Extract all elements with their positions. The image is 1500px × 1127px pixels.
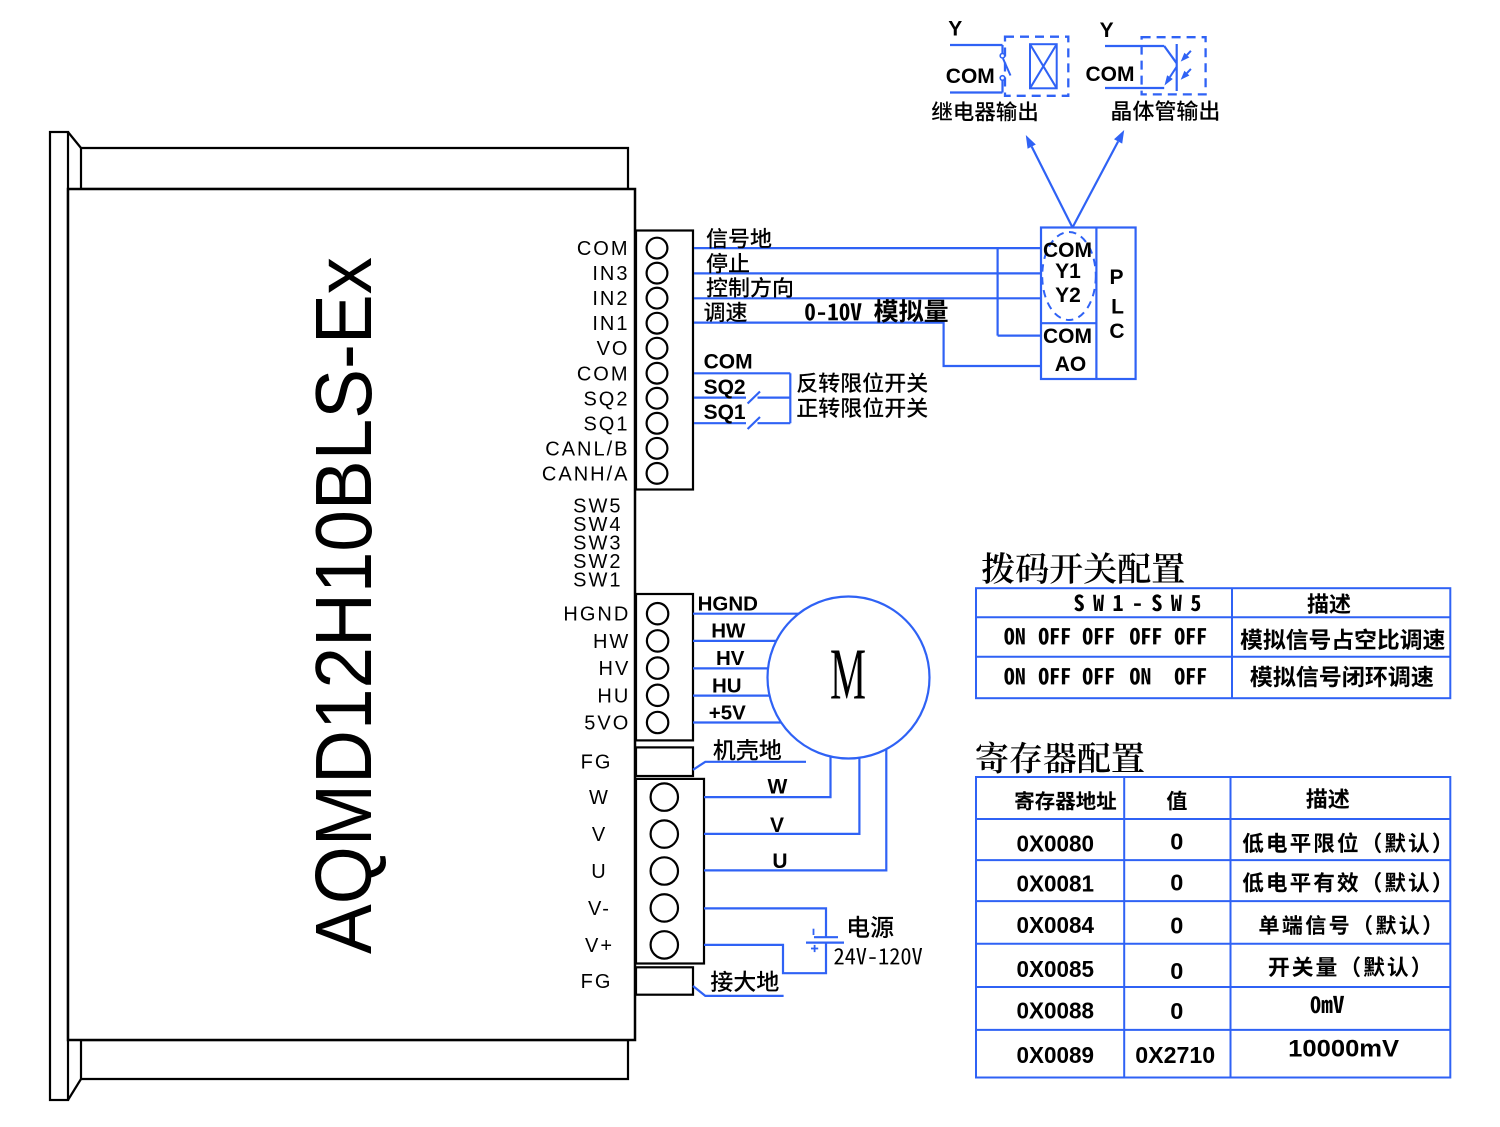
svg-text:U: U [591, 861, 607, 883]
svg-text:W: W [768, 775, 788, 798]
svg-text:HGND: HGND [563, 604, 630, 626]
svg-text:SW1: SW1 [573, 569, 622, 591]
svg-text:SQ1: SQ1 [704, 401, 746, 424]
svg-text:AQMD12H10BLS-Ex: AQMD12H10BLS-Ex [299, 257, 388, 954]
svg-text:0: 0 [1170, 913, 1183, 939]
svg-text:VO: VO [597, 338, 630, 360]
svg-text:FG: FG [581, 752, 613, 774]
svg-text:COM: COM [704, 350, 753, 373]
svg-text:P: P [1109, 266, 1123, 289]
svg-text:0X0080: 0X0080 [1017, 831, 1095, 857]
svg-text:0X0084: 0X0084 [1017, 912, 1095, 938]
svg-text:HU: HU [597, 685, 630, 707]
svg-text:HU: HU [712, 674, 742, 697]
svg-text:0X0081: 0X0081 [1017, 871, 1095, 897]
svg-text:0: 0 [1170, 870, 1183, 896]
svg-text:HV: HV [716, 647, 745, 670]
svg-text:IN2: IN2 [592, 288, 629, 310]
svg-text:SQ2: SQ2 [704, 376, 746, 399]
svg-text:Y2: Y2 [1055, 284, 1081, 307]
svg-text:0X2710: 0X2710 [1135, 1042, 1215, 1068]
svg-text:HGND: HGND [698, 593, 758, 616]
svg-text:0: 0 [1170, 958, 1183, 984]
svg-text:0: 0 [1170, 998, 1183, 1024]
svg-text:10000mV: 10000mV [1288, 1035, 1399, 1062]
svg-text:Y: Y [1100, 19, 1114, 42]
svg-text:IN1: IN1 [592, 313, 629, 335]
svg-text:C: C [1109, 320, 1124, 343]
svg-text:COM: COM [1086, 63, 1135, 86]
svg-text:COM: COM [1043, 239, 1092, 262]
svg-text:L: L [1111, 296, 1124, 319]
svg-text:W: W [589, 787, 610, 809]
svg-text:0X0085: 0X0085 [1017, 956, 1095, 982]
svg-text:COM: COM [946, 65, 995, 88]
svg-text:0: 0 [1170, 829, 1183, 855]
svg-text:IN3: IN3 [592, 263, 629, 285]
svg-text:+5V: +5V [709, 701, 746, 724]
svg-text:AO: AO [1055, 353, 1087, 376]
svg-text:COM: COM [577, 363, 630, 385]
svg-text:V: V [770, 814, 784, 837]
svg-text:HW: HW [711, 620, 746, 643]
svg-text:CANL/B: CANL/B [545, 438, 629, 460]
svg-text:Y1: Y1 [1055, 260, 1081, 283]
svg-text:0X0089: 0X0089 [1017, 1042, 1095, 1068]
svg-text:SQ2: SQ2 [583, 388, 629, 410]
svg-text:5VO: 5VO [584, 713, 630, 735]
svg-text:HW: HW [593, 631, 630, 653]
svg-text:V: V [592, 824, 607, 846]
svg-text:SQ1: SQ1 [583, 413, 629, 435]
svg-text:FG: FG [581, 971, 613, 993]
svg-text:Y: Y [948, 18, 962, 41]
svg-text:COM: COM [577, 238, 630, 260]
svg-text:M: M [830, 633, 866, 714]
svg-text:U: U [772, 850, 787, 873]
svg-text:V+: V+ [585, 935, 614, 957]
svg-text:HV: HV [599, 658, 631, 680]
svg-text:CANH/A: CANH/A [542, 463, 630, 485]
svg-text:COM: COM [1043, 325, 1092, 348]
svg-text:0X0088: 0X0088 [1017, 997, 1095, 1023]
svg-text:V-: V- [588, 898, 611, 920]
